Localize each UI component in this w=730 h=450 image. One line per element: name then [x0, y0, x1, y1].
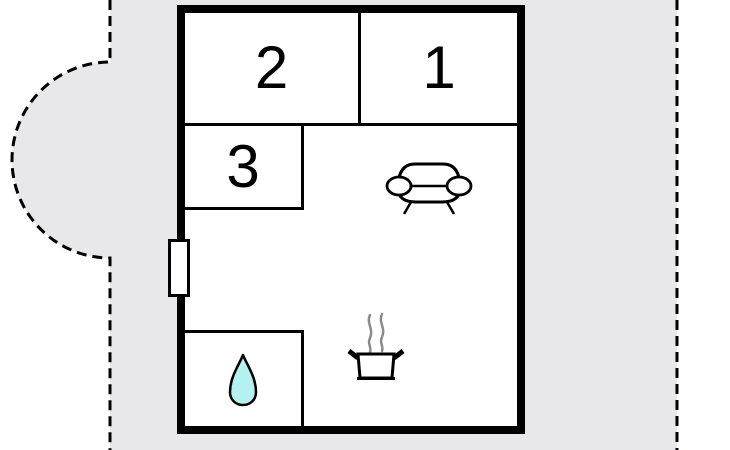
- room-2-label: 2: [255, 38, 288, 98]
- bathroom: [185, 330, 304, 426]
- steam-icon: [381, 314, 383, 351]
- sofa-icon: [385, 158, 473, 216]
- water-drop-icon: [226, 352, 260, 408]
- sofa-armrest-left: [387, 177, 411, 195]
- room-2: 2: [185, 13, 361, 126]
- sofa-legs: [404, 202, 454, 214]
- pot-body: [358, 354, 394, 378]
- sofa-armrest-right: [447, 177, 471, 195]
- room-3-label: 3: [226, 137, 259, 197]
- room-1-label: 1: [422, 38, 455, 98]
- steam-icon: [369, 315, 371, 352]
- room-1: 1: [361, 13, 517, 126]
- window-icon: [168, 239, 190, 297]
- room-3: 3: [185, 126, 304, 210]
- floor-plan-canvas: 2 1 3: [0, 0, 730, 450]
- stove-pot-icon: [344, 310, 408, 384]
